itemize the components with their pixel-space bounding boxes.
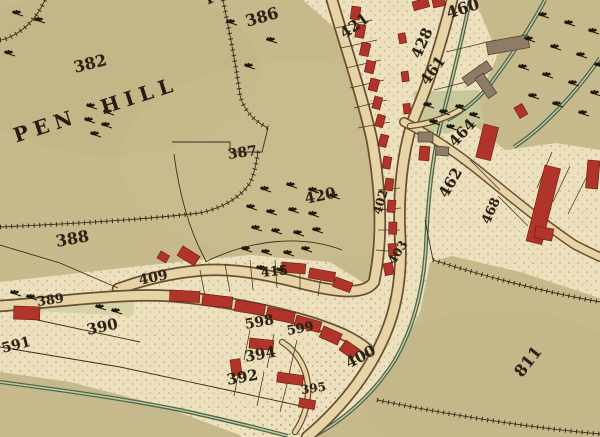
- parcel-label-464: 464: [447, 116, 479, 149]
- parcel-label-420: 420: [303, 186, 337, 207]
- parcel-label-390: 390: [85, 317, 119, 338]
- parcel-label-462: 462: [437, 166, 466, 201]
- parcel-label-389: 389: [36, 292, 65, 309]
- historic-map-scan: PEN HILL PEN 386 382 421 428 460 461 464…: [0, 0, 600, 437]
- parcel-label-382: 382: [72, 52, 108, 76]
- place-label-pen-hill: PEN HILL: [11, 73, 181, 145]
- parcel-label-386: 386: [244, 5, 281, 30]
- parcel-label-599: 599: [286, 320, 315, 338]
- parcel-label-460: 460: [445, 0, 482, 22]
- parcel-label-394: 394: [244, 345, 277, 365]
- parcel-label-409: 409: [138, 268, 170, 288]
- parcel-label-402: 402: [371, 188, 389, 215]
- parcel-label-421: 421: [338, 11, 372, 42]
- parcel-label-392: 392: [226, 368, 259, 388]
- parcel-label-811: 811: [512, 344, 545, 380]
- parcel-label-388: 388: [55, 228, 91, 250]
- map-labels: PEN HILL PEN 386 382 421 428 460 461 464…: [0, 0, 600, 437]
- parcel-label-395: 395: [300, 381, 326, 396]
- parcel-label-598: 598: [244, 313, 275, 332]
- place-label-pen-partial: PEN: [203, 0, 251, 7]
- parcel-label-591: 591: [0, 335, 32, 356]
- parcel-label-403: 403: [386, 239, 409, 267]
- parcel-label-400: 400: [343, 343, 378, 371]
- parcel-label-387: 387: [227, 144, 258, 162]
- parcel-label-415: 415: [260, 264, 288, 280]
- parcel-label-468: 468: [480, 196, 503, 226]
